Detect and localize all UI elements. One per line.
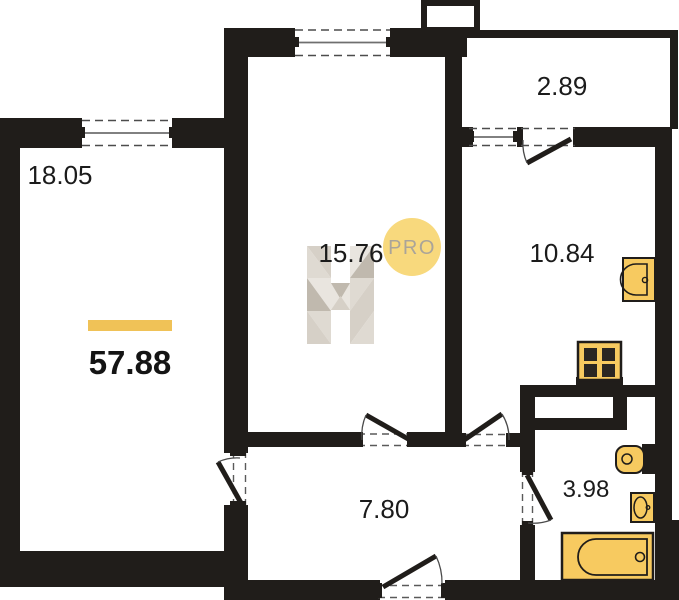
door-icon-bathroom — [522, 468, 551, 528]
floorplan-svg: PRO 18.05 15.76 2.89 10.84 7.80 3.98 57.… — [0, 0, 679, 600]
pro-badge: PRO — [383, 218, 441, 276]
toilet-icon — [616, 444, 657, 474]
room-label-bathroom: 3.98 — [563, 476, 610, 503]
washbasin-icon — [631, 493, 654, 522]
door-icon-bedroom — [355, 415, 415, 447]
pro-badge-label: PRO — [388, 237, 436, 259]
window-icon-living — [77, 121, 177, 146]
total-area-accent-bar — [88, 320, 172, 331]
shaft-outline — [424, 3, 477, 30]
room-label-kitchen: 10.84 — [529, 238, 594, 268]
window-icon-bedroom — [291, 30, 394, 56]
stove-icon — [576, 342, 623, 387]
room-label-hallway: 7.80 — [359, 494, 410, 524]
room-label-living: 18.05 — [27, 160, 92, 190]
door-icon-entrance — [374, 556, 449, 598]
door-icon-balcony — [523, 139, 571, 163]
door-icon-living — [218, 449, 246, 508]
bathtub-icon — [562, 533, 653, 580]
door-icon-kitchen — [459, 414, 513, 447]
room-label-bedroom: 15.76 — [318, 238, 383, 268]
floorplan: PRO 18.05 15.76 2.89 10.84 7.80 3.98 57.… — [0, 0, 679, 600]
kitchen-sink-icon — [621, 258, 656, 301]
walls — [0, 28, 679, 600]
total-area-label: 57.88 — [89, 344, 172, 381]
room-label-balcony: 2.89 — [537, 71, 588, 101]
